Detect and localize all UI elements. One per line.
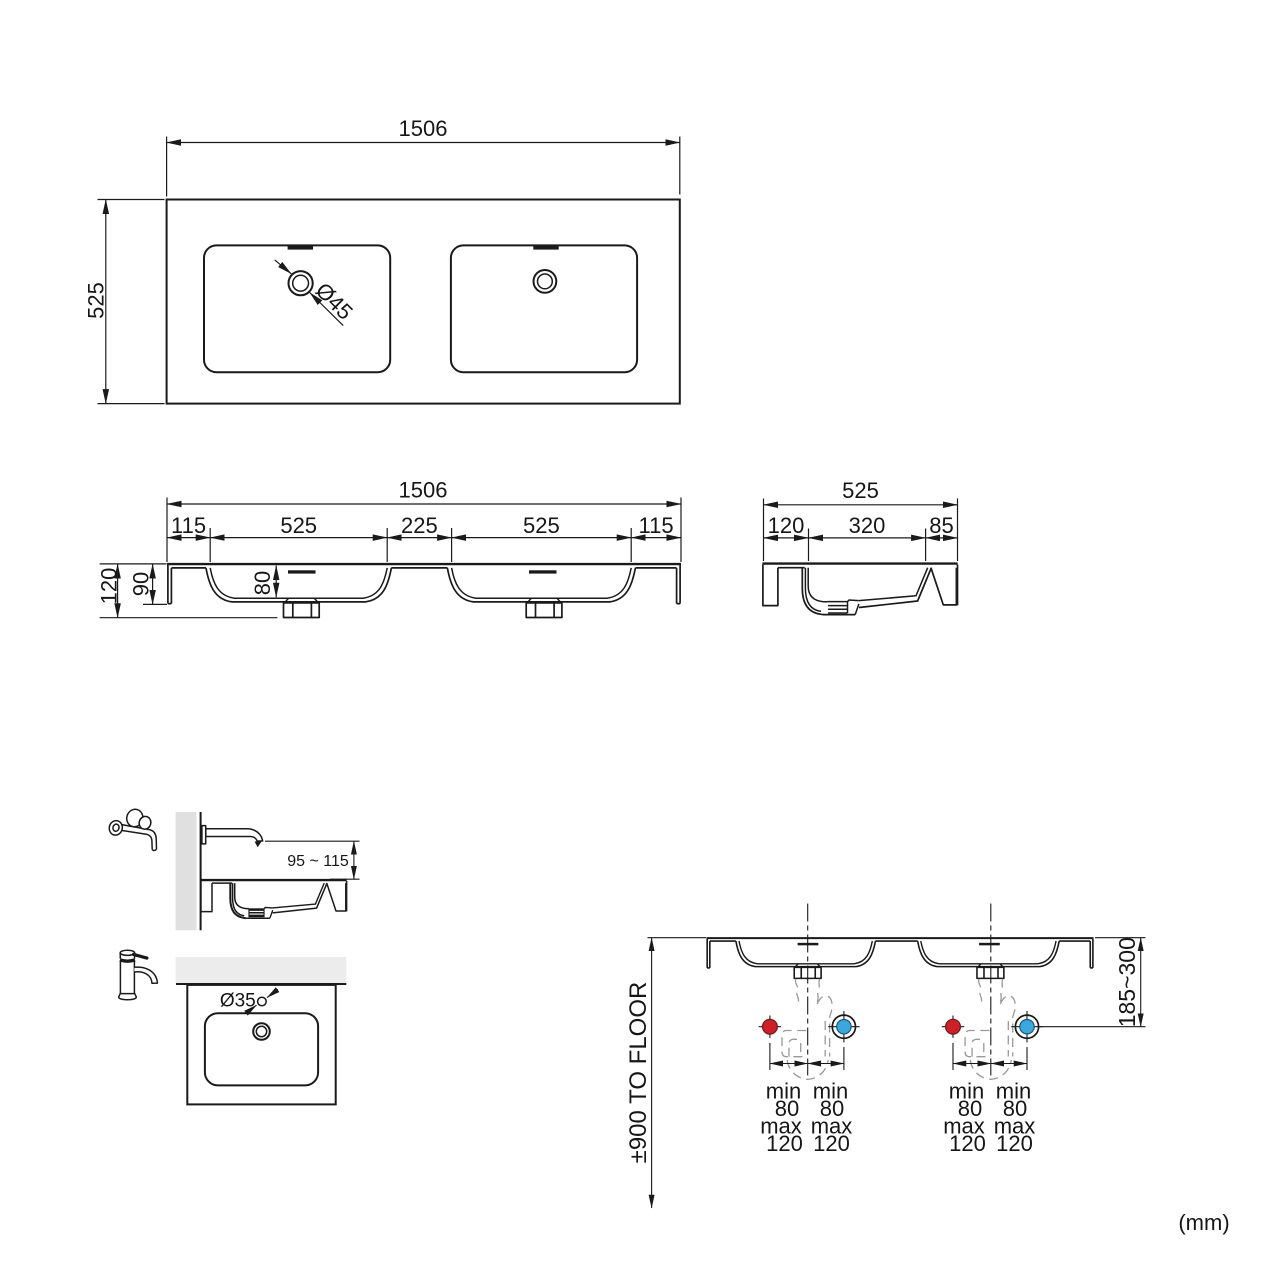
svg-text:Ø35: Ø35: [220, 991, 256, 1012]
svg-text:80: 80: [250, 571, 275, 595]
svg-text:525: 525: [842, 478, 879, 503]
svg-text:185~300: 185~300: [1114, 937, 1140, 1027]
svg-text:525: 525: [523, 513, 560, 538]
svg-text:95 ~ 115: 95 ~ 115: [287, 853, 349, 870]
svg-text:1506: 1506: [399, 116, 448, 141]
svg-text:1506: 1506: [399, 478, 448, 503]
svg-text:320: 320: [849, 513, 886, 538]
svg-text:120: 120: [97, 568, 122, 605]
svg-text:525: 525: [84, 282, 109, 319]
svg-text:115: 115: [171, 513, 206, 538]
svg-text:120: 120: [813, 1131, 850, 1156]
svg-text:120: 120: [996, 1131, 1033, 1156]
svg-text:120: 120: [768, 513, 805, 538]
svg-text:(mm): (mm): [1178, 1210, 1229, 1235]
svg-text:±900 TO FLOOR: ±900 TO FLOOR: [625, 982, 652, 1164]
svg-text:120: 120: [949, 1131, 986, 1156]
svg-text:115: 115: [639, 513, 674, 538]
svg-text:225: 225: [401, 513, 438, 538]
svg-text:525: 525: [280, 513, 317, 538]
svg-text:90: 90: [129, 572, 154, 596]
svg-text:85: 85: [929, 513, 953, 538]
svg-text:120: 120: [766, 1131, 803, 1156]
